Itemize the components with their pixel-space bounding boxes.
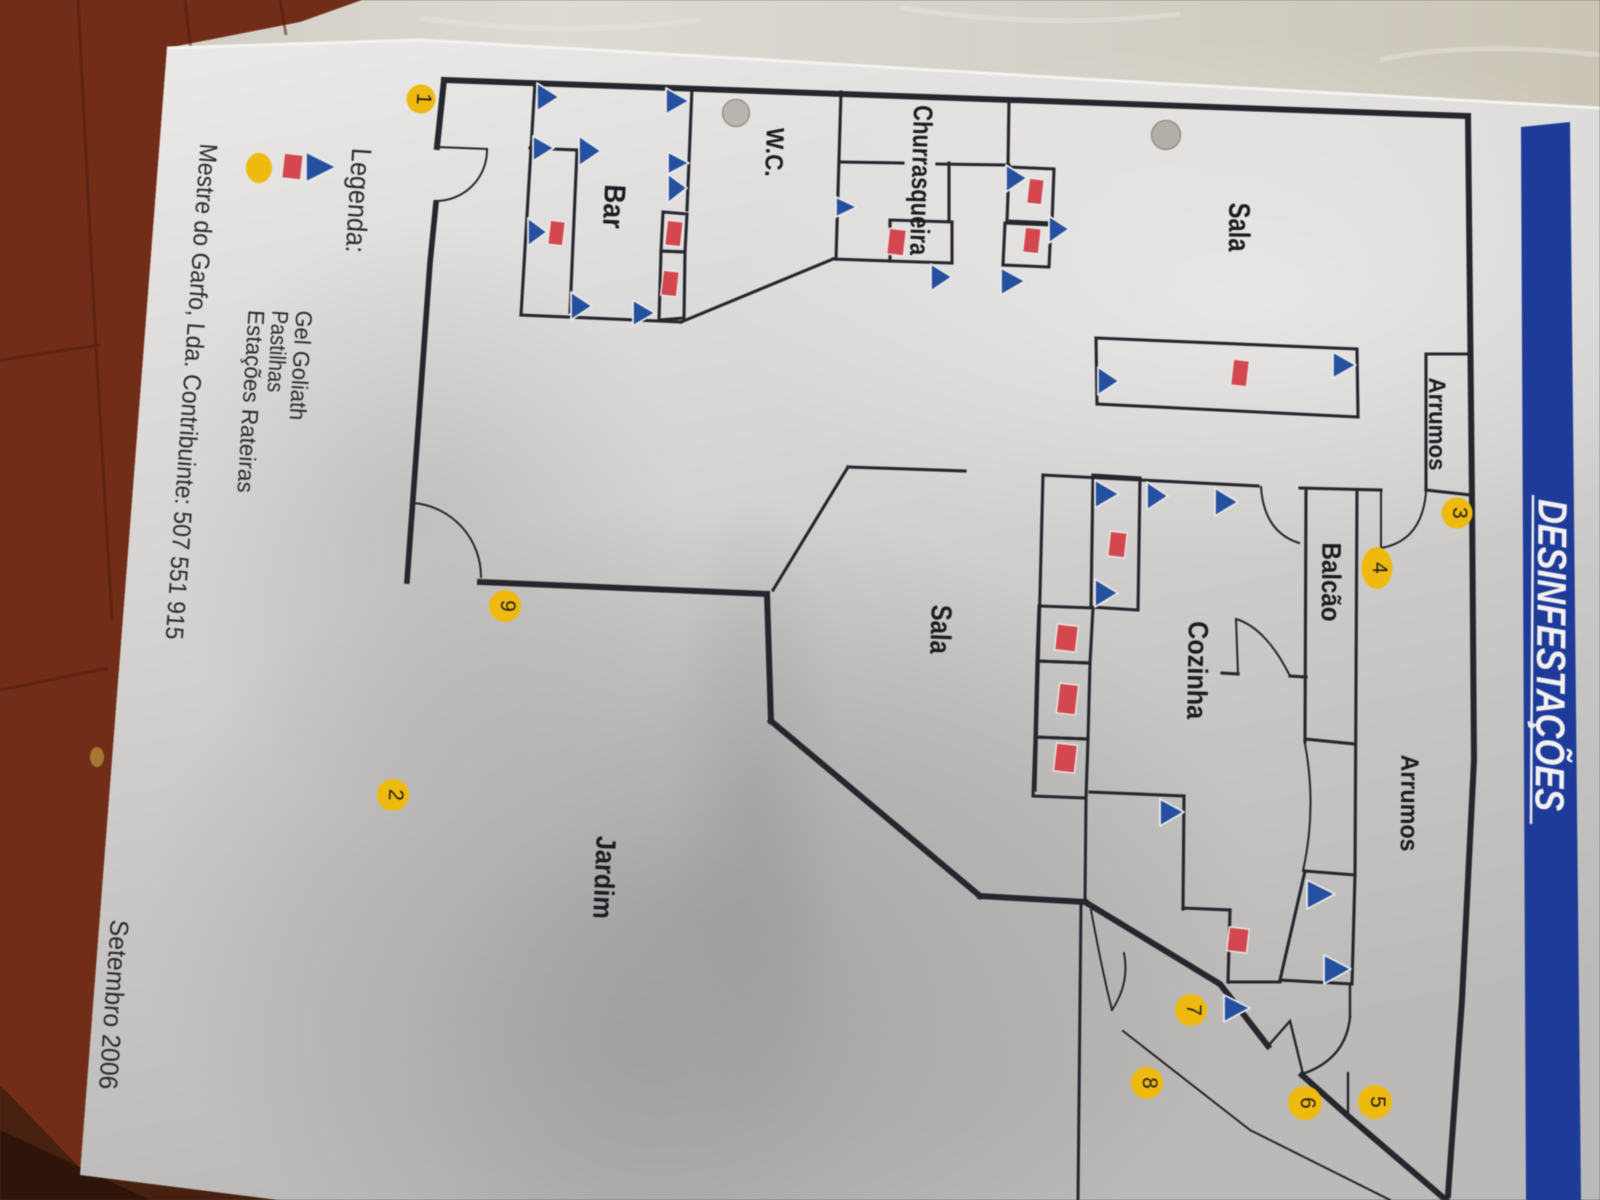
svg-text:Cozinha: Cozinha: [1181, 621, 1214, 720]
svg-text:Sala: Sala: [923, 604, 957, 655]
svg-text:Sala: Sala: [1222, 202, 1255, 252]
svg-text:2: 2: [384, 789, 408, 802]
svg-text:Arrumos: Arrumos: [1395, 754, 1424, 851]
svg-text:8: 8: [1138, 1077, 1161, 1089]
svg-text:5: 5: [1366, 1096, 1389, 1108]
svg-text:3: 3: [1448, 507, 1471, 519]
svg-text:7: 7: [1182, 1004, 1205, 1016]
svg-text:Churrasqueira: Churrasqueira: [904, 105, 938, 257]
svg-text:6: 6: [1296, 1097, 1319, 1109]
svg-text:Bar: Bar: [596, 184, 631, 230]
svg-text:W.C.: W.C.: [759, 127, 789, 177]
svg-text:4: 4: [1368, 562, 1391, 574]
svg-text:Jardim: Jardim: [587, 835, 622, 919]
svg-text:1: 1: [412, 93, 436, 106]
svg-text:Legenda:: Legenda:: [340, 147, 377, 254]
svg-text:Balcão: Balcão: [1316, 542, 1347, 621]
svg-text:9: 9: [496, 600, 520, 613]
svg-text:Arrumos: Arrumos: [1423, 378, 1450, 471]
